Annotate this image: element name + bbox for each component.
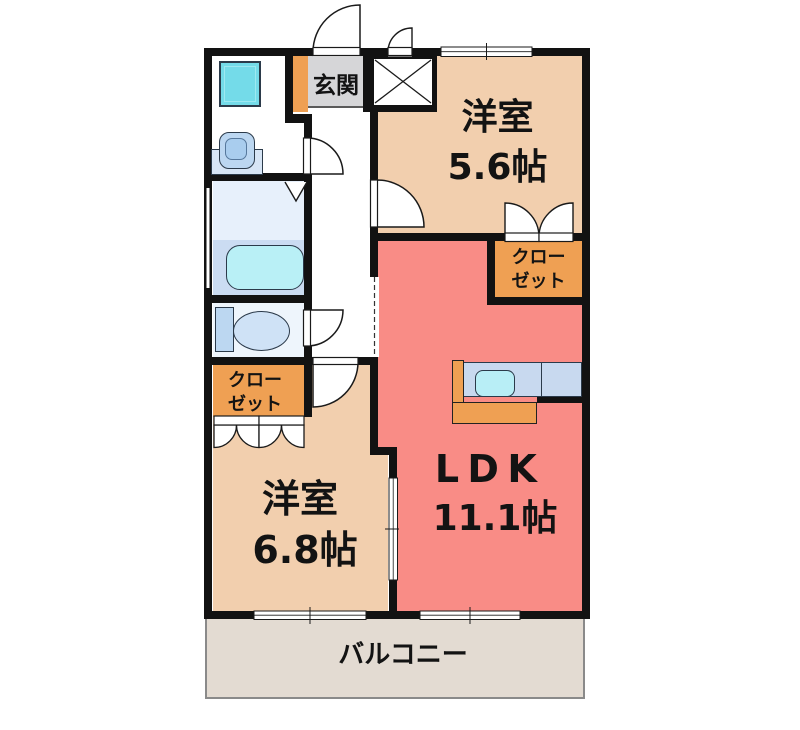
kitchen-counter-divider [541, 363, 542, 396]
western-room1-label: 洋室 [420, 96, 575, 140]
ldk-area: 11.1帖 [390, 498, 600, 540]
toilet-tank [215, 307, 234, 352]
floor-plan: 玄関 洋室 5.6帖 クロー ゼット LDK 11.1帖 洋室 6.8帖 クロー… [0, 0, 800, 730]
western-room1-area: 5.6帖 [420, 146, 575, 190]
toilet-icon [233, 311, 290, 351]
wall-washroom-entrance [285, 48, 293, 114]
washing-machine-pan-icon [219, 61, 261, 107]
wall-room1-ldk [378, 233, 582, 241]
closet2-label-line2: ゼット [220, 394, 290, 416]
wall-hallway-bottom [205, 357, 378, 365]
wall-closet1-left [487, 233, 495, 305]
bathroom-floor-upper [213, 181, 304, 240]
entrance-step-line [308, 106, 363, 108]
washbasin-icon [219, 132, 255, 169]
wall-closet2-right [304, 365, 312, 417]
closet2-label-line1: クロー [220, 370, 290, 392]
bathtub-icon [226, 245, 304, 290]
western-room2-label: 洋室 [215, 476, 385, 522]
closet1-label-line1: クロー [495, 246, 582, 270]
wall-hallway-ldk [370, 112, 378, 455]
kitchen-sink-icon [475, 370, 515, 397]
washbasin-bowl [225, 138, 247, 160]
kitchen-counter-icon [463, 362, 582, 397]
wall-outer-bottom [204, 611, 590, 619]
closet1-label-line2: ゼット [495, 270, 582, 294]
wall-closet1-bottom [487, 297, 582, 305]
kitchen-counter-front [452, 402, 537, 424]
washing-machine-pan-inner [224, 66, 256, 102]
entrance-label: 玄関 [306, 72, 366, 100]
kitchen-counter-side [452, 360, 464, 403]
ldk-label: LDK [390, 447, 590, 491]
wall-leftrooms-hallway [304, 114, 312, 357]
western-room2-area: 6.8帖 [215, 528, 395, 572]
balcony-label: バルコニー [207, 639, 599, 671]
wall-bathroom-toilet [205, 295, 312, 303]
wall-outer-left [204, 48, 212, 619]
